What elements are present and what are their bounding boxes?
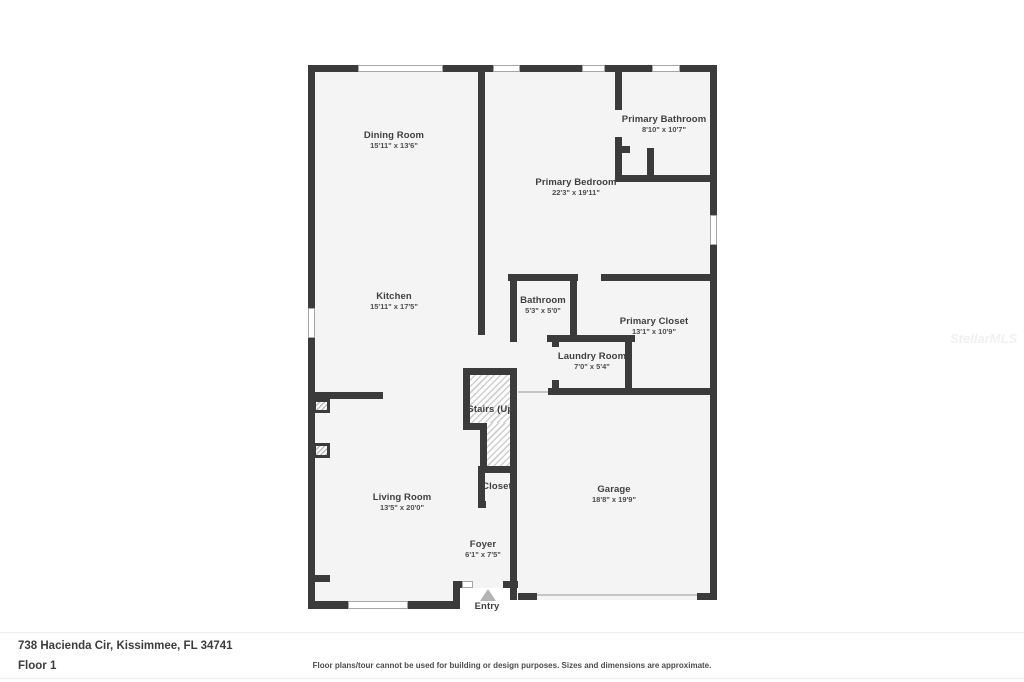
room-label-stairs: Stairs (Up) bbox=[467, 404, 516, 415]
wall bbox=[615, 65, 622, 110]
room-label-garage: Garage 18'8" x 19'9" bbox=[592, 484, 636, 505]
wall bbox=[510, 274, 517, 342]
footer-disclaimer: Floor plans/tour cannot be used for buil… bbox=[0, 661, 1024, 670]
watermark: StellarMLS bbox=[950, 331, 1017, 346]
room-label-bathroom: Bathroom 5'3" x 5'0" bbox=[520, 295, 566, 316]
wall bbox=[548, 388, 717, 395]
room-label-foyer: Foyer 6'1" x 7'5" bbox=[465, 539, 501, 560]
wall-niche bbox=[313, 443, 330, 458]
wall-niche bbox=[313, 399, 330, 413]
wall bbox=[463, 423, 487, 430]
wall bbox=[308, 338, 315, 609]
wall bbox=[697, 593, 717, 600]
wall bbox=[615, 175, 717, 182]
room-label-living-room: Living Room 13'5" x 20'0" bbox=[373, 492, 432, 513]
wall bbox=[552, 335, 559, 347]
wall bbox=[308, 65, 358, 72]
wall bbox=[463, 368, 517, 375]
floor-plan: Dining Room 15'11" x 13'6" Primary Bathr… bbox=[0, 0, 1024, 682]
room-label-primary-closet: Primary Closet 13'1" x 10'9" bbox=[620, 316, 688, 337]
wall bbox=[308, 575, 330, 582]
wall bbox=[463, 368, 470, 430]
room-label-dining-room: Dining Room 15'11" x 13'6" bbox=[364, 130, 424, 151]
room-label-primary-bedroom: Primary Bedroom 22'3" x 19'11" bbox=[535, 177, 616, 198]
window bbox=[462, 581, 473, 588]
wall bbox=[478, 65, 485, 335]
wall bbox=[520, 65, 582, 72]
door-threshold bbox=[518, 391, 548, 393]
window bbox=[652, 65, 680, 72]
garage-door-line bbox=[537, 594, 697, 596]
window bbox=[308, 308, 315, 338]
room-label-laundry-room: Laundry Room 7'0" x 5'4" bbox=[558, 351, 626, 372]
room-label-entry: Entry bbox=[475, 601, 500, 612]
stairs-hatch bbox=[470, 375, 510, 423]
stairs-hatch bbox=[487, 423, 510, 466]
wall bbox=[710, 245, 717, 600]
wall bbox=[478, 501, 486, 508]
wall bbox=[622, 146, 630, 153]
wall bbox=[480, 466, 517, 473]
window bbox=[348, 601, 408, 609]
wall bbox=[605, 65, 652, 72]
room-label-primary-bathroom: Primary Bathroom 8'10" x 10'7" bbox=[622, 114, 706, 135]
wall bbox=[601, 274, 710, 281]
footer-address: 738 Hacienda Cir, Kissimmee, FL 34741 bbox=[18, 640, 233, 652]
wall bbox=[710, 65, 717, 215]
footer-bottom-line bbox=[0, 678, 1024, 679]
wall bbox=[308, 65, 315, 308]
room-label-closet: Closet bbox=[482, 481, 512, 492]
wall bbox=[570, 274, 577, 342]
footer-divider bbox=[0, 632, 1024, 633]
wall bbox=[443, 65, 493, 72]
window bbox=[493, 65, 520, 72]
wall bbox=[510, 335, 517, 342]
entry-arrow-icon bbox=[480, 589, 496, 601]
window bbox=[710, 215, 717, 245]
wall bbox=[518, 593, 537, 600]
wall bbox=[508, 274, 578, 281]
wall bbox=[308, 392, 383, 399]
window bbox=[582, 65, 605, 72]
floorplan-page: { "plan": { "rooms": [ {"name": "Dining … bbox=[0, 0, 1024, 682]
wall bbox=[308, 601, 348, 609]
room-label-kitchen: Kitchen 15'11" x 17'5" bbox=[370, 291, 418, 312]
window bbox=[358, 65, 443, 72]
